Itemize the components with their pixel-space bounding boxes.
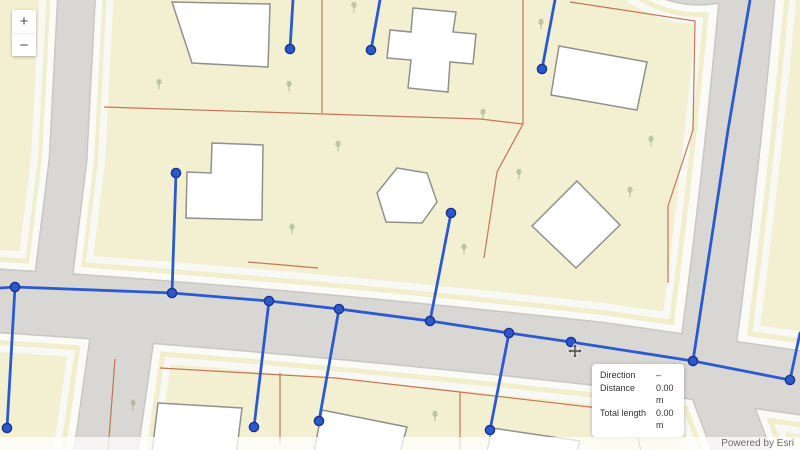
network-node[interactable]: [167, 288, 176, 297]
building-footprint: [387, 8, 476, 92]
network-edge[interactable]: [371, 0, 380, 50]
network-node[interactable]: [314, 416, 323, 425]
building-footprint: [532, 181, 620, 268]
zoom-control: + −: [12, 10, 36, 56]
attribution-bar: Powered by Esri: [0, 437, 800, 450]
network-node[interactable]: [446, 208, 455, 217]
direction-value: –: [656, 369, 676, 382]
parcel-boundary: [484, 124, 523, 258]
total-length-value: 0.00 m: [656, 407, 676, 432]
direction-label: Direction: [600, 369, 656, 382]
network-edge[interactable]: [542, 0, 555, 69]
network-node[interactable]: [366, 45, 375, 54]
network-node[interactable]: [688, 356, 697, 365]
total-length-label: Total length: [600, 407, 656, 432]
map-canvas[interactable]: + − Direction – Distance 0.00 m Total le…: [0, 0, 800, 450]
network-node[interactable]: [785, 375, 794, 384]
parcel-boundary: [104, 107, 523, 124]
zoom-in-button[interactable]: +: [12, 10, 36, 33]
parcel-boundary: [248, 262, 318, 268]
plus-icon: +: [20, 13, 29, 30]
building-footprint: [377, 168, 437, 223]
distance-label: Distance: [600, 382, 656, 407]
zoom-out-button[interactable]: −: [12, 33, 36, 56]
distance-value: 0.00 m: [656, 382, 676, 407]
network-node[interactable]: [485, 425, 494, 434]
network-node[interactable]: [285, 44, 294, 53]
minus-icon: −: [20, 37, 29, 54]
network-node[interactable]: [334, 304, 343, 313]
measurement-row-direction: Direction –: [600, 369, 676, 382]
measurement-panel: Direction – Distance 0.00 m Total length…: [592, 364, 684, 437]
network-node[interactable]: [2, 423, 11, 432]
network-node[interactable]: [249, 422, 258, 431]
network-node[interactable]: [171, 168, 180, 177]
network-node[interactable]: [425, 316, 434, 325]
measurement-row-distance: Distance 0.00 m: [600, 382, 676, 407]
network-node[interactable]: [264, 296, 273, 305]
network-edge[interactable]: [290, 0, 293, 49]
network-node[interactable]: [537, 64, 546, 73]
network-node[interactable]: [10, 282, 19, 291]
building-footprint: [172, 2, 270, 67]
network-node[interactable]: [504, 328, 513, 337]
measurement-row-total-length: Total length 0.00 m: [600, 407, 676, 432]
building-footprint: [551, 46, 647, 110]
building-footprint: [186, 143, 263, 220]
powered-by-esri-text: Powered by Esri: [721, 438, 794, 449]
